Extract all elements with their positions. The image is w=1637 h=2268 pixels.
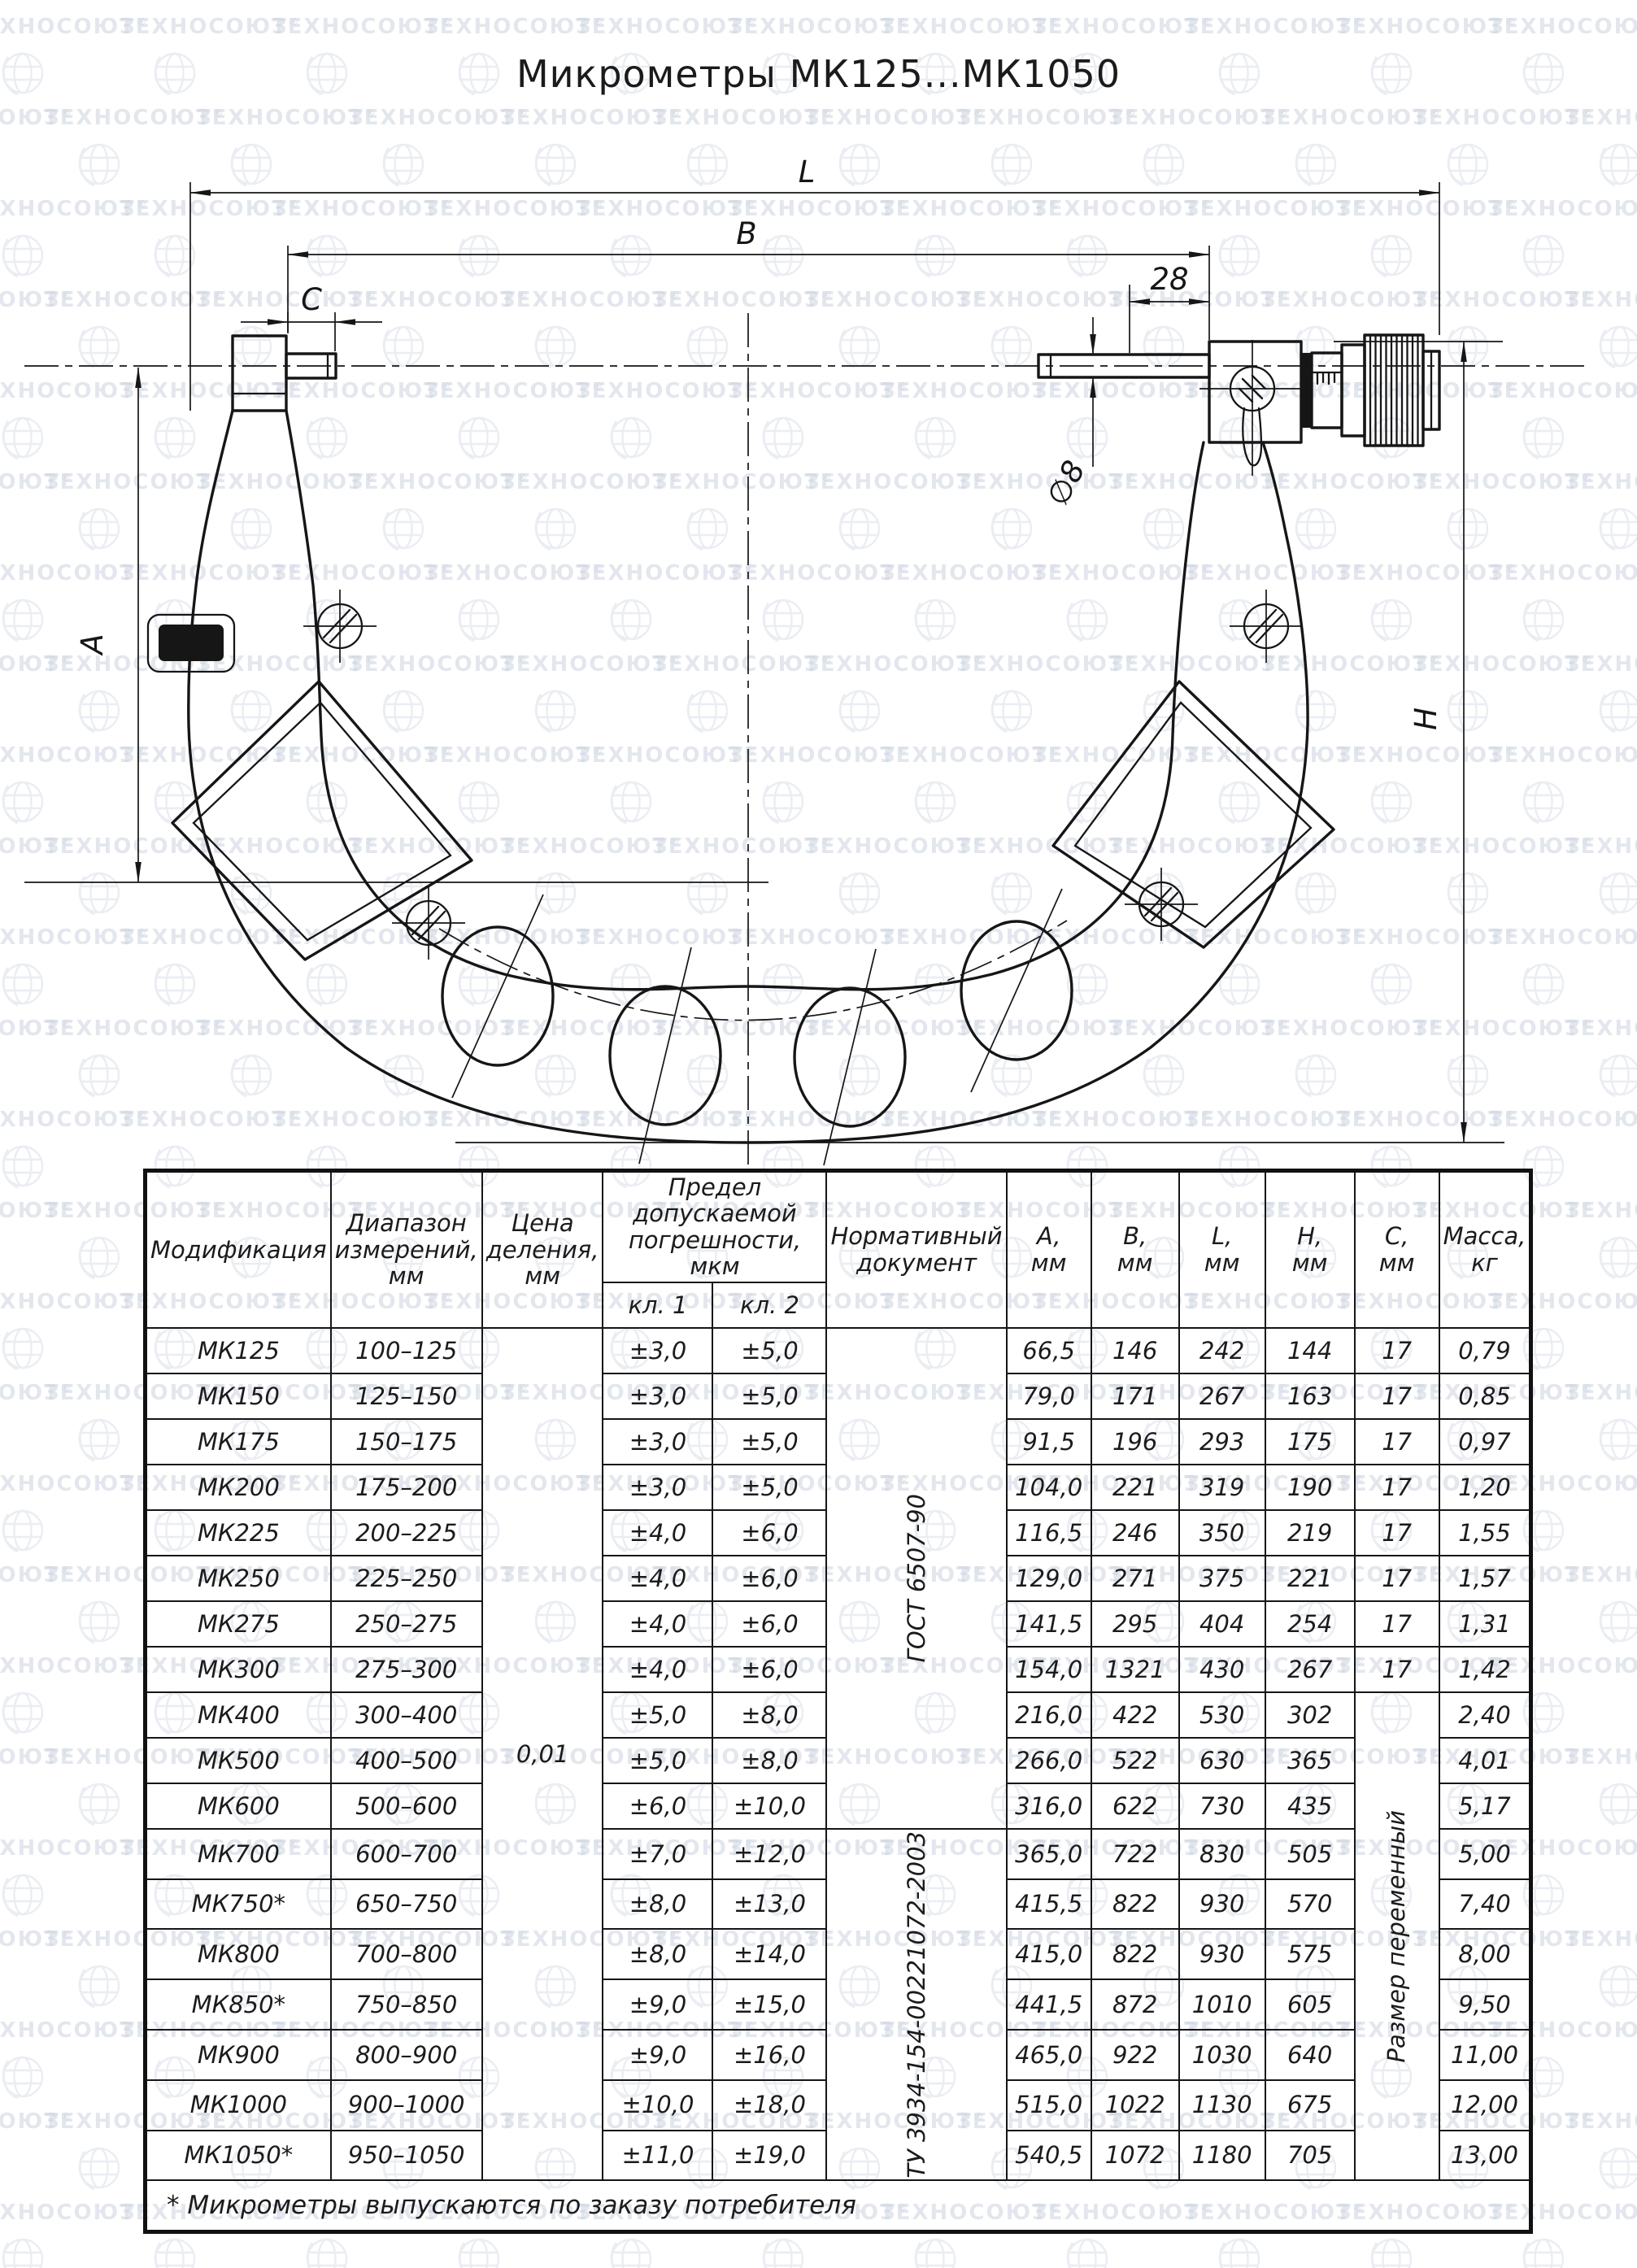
td-b: 822 bbox=[1091, 1929, 1179, 1979]
td-h: 505 bbox=[1265, 1829, 1355, 1879]
td-b: 221 bbox=[1091, 1465, 1179, 1510]
watermark-globe-icon bbox=[1594, 1778, 1637, 1830]
label-H: H bbox=[1408, 707, 1443, 730]
td-class1: ±11,0 bbox=[603, 2131, 712, 2181]
td-c: 17 bbox=[1355, 1465, 1439, 1510]
watermark-text: ТЕХНОСОЮЗ® bbox=[1565, 1745, 1637, 1770]
td-model: МК250 bbox=[146, 1556, 331, 1601]
td-b: 246 bbox=[1091, 1510, 1179, 1556]
td-l: 293 bbox=[1179, 1419, 1265, 1465]
th-dim-1: B,мм bbox=[1091, 1171, 1179, 1328]
watermark-text: ТЕХНОСОЮЗ® bbox=[0, 1199, 73, 1223]
td-l: 930 bbox=[1179, 1929, 1265, 1979]
watermark-text: ТЕХНОСОЮЗ® bbox=[0, 1563, 73, 1587]
td-model: МК175 bbox=[146, 1419, 331, 1465]
td-class2: ±15,0 bbox=[712, 1979, 826, 2030]
th-dim-4: C,мм bbox=[1355, 1171, 1439, 1328]
th-dim-5: Масса,кг bbox=[1439, 1171, 1531, 1328]
footnote-row: * Микрометры выпускаются по заказу потре… bbox=[146, 2180, 1531, 2232]
th-dim-symbol: Масса, bbox=[1443, 1223, 1526, 1249]
datasheet-page: ТЕХНОСОЮЗ®ТЕХНОСОЮЗ®ТЕХНОСОЮЗ®ТЕХНОСОЮЗ®… bbox=[0, 0, 1637, 2268]
td-model: МК700 bbox=[146, 1829, 331, 1879]
watermark-text: ТЕХНОСОЮЗ® bbox=[0, 1290, 149, 1314]
doc-tu-text: ТУ 3934-154-00221072-2003 bbox=[903, 1831, 930, 2179]
td-b: 295 bbox=[1091, 1601, 1179, 1647]
td-h: 144 bbox=[1265, 1328, 1355, 1373]
anvil-assembly bbox=[233, 336, 336, 411]
td-class1: ±8,0 bbox=[603, 1929, 712, 1979]
watermark-globe-icon bbox=[73, 1231, 125, 1283]
td-class2: ±18,0 bbox=[712, 2080, 826, 2131]
td-a: 365,0 bbox=[1007, 1829, 1091, 1879]
td-a: 104,0 bbox=[1007, 1465, 1091, 1510]
watermark-globe-icon bbox=[0, 2233, 49, 2268]
td-a: 141,5 bbox=[1007, 1601, 1091, 1647]
watermark-text: ТЕХНОСОЮЗ® bbox=[0, 2201, 149, 2225]
td-c: 17 bbox=[1355, 1419, 1439, 1465]
td-mass: 1,42 bbox=[1439, 1647, 1531, 1692]
td-class2: ±5,0 bbox=[712, 1419, 826, 1465]
watermark-globe-icon bbox=[605, 2233, 657, 2268]
th-dim-unit: мм bbox=[1359, 1250, 1435, 1276]
td-class2: ±6,0 bbox=[712, 1647, 826, 1692]
td-l: 350 bbox=[1179, 1510, 1265, 1556]
watermark-text: ТЕХНОСОЮЗ® bbox=[0, 1654, 149, 1678]
td-mass: 13,00 bbox=[1439, 2131, 1531, 2181]
th-dim-symbol: A, bbox=[1011, 1223, 1087, 1249]
td-l: 930 bbox=[1179, 1879, 1265, 1930]
td-a: 266,0 bbox=[1007, 1738, 1091, 1783]
th-dim-3: H,мм bbox=[1265, 1171, 1355, 1328]
td-model: МК150 bbox=[146, 1373, 331, 1419]
td-l: 830 bbox=[1179, 1829, 1265, 1879]
td-l: 267 bbox=[1179, 1373, 1265, 1419]
th-dim-2: L,мм bbox=[1179, 1171, 1265, 1328]
watermark-text: ТЕХНОСОЮЗ® bbox=[0, 1745, 73, 1770]
c-variable-text: Размер переменный bbox=[1383, 1810, 1409, 2062]
th-document: Нормативный документ bbox=[826, 1171, 1006, 1328]
label-28: 28 bbox=[1150, 262, 1188, 297]
watermark-globe-icon bbox=[1213, 2233, 1265, 2268]
td-model: МК1000 bbox=[146, 2080, 331, 2131]
td-b: 422 bbox=[1091, 1692, 1179, 1738]
th-dim-unit: мм bbox=[1269, 1250, 1351, 1276]
td-l: 1030 bbox=[1179, 2030, 1265, 2080]
td-h: 254 bbox=[1265, 1601, 1355, 1647]
td-range: 650–750 bbox=[331, 1879, 482, 1930]
label-C: C bbox=[301, 282, 322, 317]
td-a: 415,0 bbox=[1007, 1929, 1091, 1979]
watermark-globe-icon bbox=[73, 1595, 125, 1648]
td-h: 435 bbox=[1265, 1783, 1355, 1829]
td-range: 900–1000 bbox=[331, 2080, 482, 2131]
td-class1: ±5,0 bbox=[603, 1692, 712, 1738]
watermark-text: ТЕХНОСОЮЗ® bbox=[0, 2109, 73, 2134]
td-model: МК200 bbox=[146, 1465, 331, 1510]
td-c: 17 bbox=[1355, 1373, 1439, 1419]
td-model: МК1050* bbox=[146, 2131, 331, 2181]
thimble bbox=[1342, 345, 1365, 436]
td-h: 267 bbox=[1265, 1647, 1355, 1692]
td-class2: ±6,0 bbox=[712, 1510, 826, 1556]
td-b: 171 bbox=[1091, 1373, 1179, 1419]
sleeve bbox=[1312, 353, 1342, 428]
td-class2: ±8,0 bbox=[712, 1738, 826, 1783]
watermark-text: ТЕХНОСОЮЗ® bbox=[1565, 1563, 1637, 1587]
td-model: МК850* bbox=[146, 1979, 331, 2030]
spec-table: МодификацияДиапазон измерений, ммЦена де… bbox=[143, 1169, 1533, 2234]
td-range: 275–300 bbox=[331, 1647, 482, 1692]
td-b: 1321 bbox=[1091, 1647, 1179, 1692]
footnote: * Микрометры выпускаются по заказу потре… bbox=[146, 2180, 1531, 2232]
td-class1: ±3,0 bbox=[603, 1419, 712, 1465]
td-a: 116,5 bbox=[1007, 1510, 1091, 1556]
th-dim-0: A,мм bbox=[1007, 1171, 1091, 1328]
th-range: Диапазон измерений, мм bbox=[331, 1171, 482, 1328]
watermark-text: ТЕХНОСОЮЗ® bbox=[0, 2018, 149, 2043]
td-model: МК900 bbox=[146, 2030, 331, 2080]
td-h: 570 bbox=[1265, 1879, 1355, 1930]
td-c-variable: Размер переменный bbox=[1355, 1692, 1439, 2181]
td-class1: ±9,0 bbox=[603, 2030, 712, 2080]
watermark-text: ТЕХНОСОЮЗ® bbox=[0, 1927, 73, 1952]
td-class2: ±6,0 bbox=[712, 1556, 826, 1601]
td-l: 404 bbox=[1179, 1601, 1265, 1647]
td-a: 515,0 bbox=[1007, 2080, 1091, 2131]
td-range: 100–125 bbox=[331, 1328, 482, 1373]
th-dim-symbol: C, bbox=[1359, 1223, 1435, 1249]
watermark-globe-icon bbox=[1594, 2142, 1637, 2194]
td-class2: ±12,0 bbox=[712, 1829, 826, 1879]
td-mass: 5,00 bbox=[1439, 1829, 1531, 1879]
micrometer-drawing: L B C 28 ∅8 A H bbox=[0, 0, 1637, 1169]
knurled-grip bbox=[1365, 335, 1423, 446]
td-mass: 9,50 bbox=[1439, 1979, 1531, 2030]
watermark-globe-icon bbox=[0, 2051, 49, 2103]
td-mass: 1,57 bbox=[1439, 1556, 1531, 1601]
td-class1: ±3,0 bbox=[603, 1328, 712, 1373]
td-l: 1180 bbox=[1179, 2131, 1265, 2181]
header-row-1: МодификацияДиапазон измерений, ммЦена де… bbox=[146, 1171, 1531, 1282]
td-b: 1022 bbox=[1091, 2080, 1179, 2131]
td-class1: ±3,0 bbox=[603, 1465, 712, 1510]
td-h: 175 bbox=[1265, 1419, 1355, 1465]
td-l: 1130 bbox=[1179, 2080, 1265, 2131]
td-class1: ±8,0 bbox=[603, 1879, 712, 1930]
td-doc-tu: ТУ 3934-154-00221072-2003 bbox=[826, 1829, 1006, 2181]
td-range: 300–400 bbox=[331, 1692, 482, 1738]
td-class2: ±5,0 bbox=[712, 1465, 826, 1510]
watermark-globe-icon bbox=[1594, 1231, 1637, 1283]
watermark-globe-icon bbox=[149, 2233, 201, 2268]
adjustment-screws bbox=[303, 590, 1303, 960]
watermark-globe-icon bbox=[1594, 1413, 1637, 1465]
watermark-globe-icon bbox=[1517, 2233, 1570, 2268]
td-mass: 12,00 bbox=[1439, 2080, 1531, 2131]
td-a: 129,0 bbox=[1007, 1556, 1091, 1601]
watermark-globe-icon bbox=[0, 1504, 49, 1556]
td-a: 316,0 bbox=[1007, 1783, 1091, 1829]
td-class1: ±4,0 bbox=[603, 1647, 712, 1692]
td-range: 750–850 bbox=[331, 1979, 482, 2030]
watermark-globe-icon bbox=[0, 1322, 49, 1374]
td-mass: 8,00 bbox=[1439, 1929, 1531, 1979]
td-mass: 11,00 bbox=[1439, 2030, 1531, 2080]
td-class2: ±6,0 bbox=[712, 1601, 826, 1647]
td-class2: ±16,0 bbox=[712, 2030, 826, 2080]
watermark-globe-icon bbox=[757, 2233, 809, 2268]
th-dim-unit: мм bbox=[1095, 1250, 1175, 1276]
td-b: 872 bbox=[1091, 1979, 1179, 2030]
label-L: L bbox=[799, 155, 816, 189]
watermark-globe-icon bbox=[73, 1413, 125, 1465]
td-class2: ±10,0 bbox=[712, 1783, 826, 1829]
td-class2: ±5,0 bbox=[712, 1328, 826, 1373]
dimension-lines bbox=[24, 182, 1504, 1143]
td-class2: ±8,0 bbox=[712, 1692, 826, 1738]
td-model: МК125 bbox=[146, 1328, 331, 1373]
td-c: 17 bbox=[1355, 1601, 1439, 1647]
td-range: 150–175 bbox=[331, 1419, 482, 1465]
td-h: 575 bbox=[1265, 1929, 1355, 1979]
td-class1: ±9,0 bbox=[603, 1979, 712, 2030]
td-range: 250–275 bbox=[331, 1601, 482, 1647]
td-mass: 4,01 bbox=[1439, 1738, 1531, 1783]
td-range: 400–500 bbox=[331, 1738, 482, 1783]
td-l: 730 bbox=[1179, 1783, 1265, 1829]
td-class1: ±10,0 bbox=[603, 2080, 712, 2131]
td-class1: ±4,0 bbox=[603, 1556, 712, 1601]
sleeve-index-band bbox=[1301, 353, 1312, 428]
td-mass: 1,55 bbox=[1439, 1510, 1531, 1556]
watermark-globe-icon bbox=[453, 2233, 505, 2268]
td-b: 1072 bbox=[1091, 2131, 1179, 2181]
td-c: 17 bbox=[1355, 1328, 1439, 1373]
th-model: Модификация bbox=[146, 1171, 331, 1328]
td-model: МК275 bbox=[146, 1601, 331, 1647]
td-model: МК225 bbox=[146, 1510, 331, 1556]
watermark-text: ТЕХНОСОЮЗ® bbox=[1565, 1199, 1637, 1223]
td-a: 66,5 bbox=[1007, 1328, 1091, 1373]
td-mass: 0,85 bbox=[1439, 1373, 1531, 1419]
td-mass: 0,79 bbox=[1439, 1328, 1531, 1373]
td-division: 0,01 bbox=[482, 1328, 603, 2181]
td-class1: ±7,0 bbox=[603, 1829, 712, 1879]
td-l: 242 bbox=[1179, 1328, 1265, 1373]
td-range: 700–800 bbox=[331, 1929, 482, 1979]
td-h: 605 bbox=[1265, 1979, 1355, 2030]
table-row: МК700600–700±7,0±12,0ТУ 3934-154-0022107… bbox=[146, 1829, 1531, 1879]
th-dim-symbol: H, bbox=[1269, 1223, 1351, 1249]
th-class2: кл. 2 bbox=[712, 1282, 826, 1328]
watermark-globe-icon bbox=[0, 1687, 49, 1739]
td-h: 190 bbox=[1265, 1465, 1355, 1510]
label-B: B bbox=[736, 216, 756, 251]
td-model: МК600 bbox=[146, 1783, 331, 1829]
watermark-text: ТЕХНОСОЮЗ® bbox=[0, 1472, 149, 1496]
watermark-globe-icon bbox=[1365, 2233, 1417, 2268]
td-a: 79,0 bbox=[1007, 1373, 1091, 1419]
td-class2: ±14,0 bbox=[712, 1929, 826, 1979]
td-l: 530 bbox=[1179, 1692, 1265, 1738]
td-a: 441,5 bbox=[1007, 1979, 1091, 2030]
td-class1: ±3,0 bbox=[603, 1373, 712, 1419]
watermark-globe-icon bbox=[301, 2233, 353, 2268]
td-mass: 7,40 bbox=[1439, 1879, 1531, 1930]
watermark-globe-icon bbox=[1594, 1960, 1637, 2012]
td-model: МК500 bbox=[146, 1738, 331, 1783]
td-c: 17 bbox=[1355, 1647, 1439, 1692]
doc-gost-text: ГОСТ 6507-90 bbox=[903, 1494, 930, 1662]
td-b: 822 bbox=[1091, 1879, 1179, 1930]
td-h: 219 bbox=[1265, 1510, 1355, 1556]
td-h: 640 bbox=[1265, 2030, 1355, 2080]
td-doc-gost: ГОСТ 6507-90 bbox=[826, 1328, 1006, 1829]
td-model: МК750* bbox=[146, 1879, 331, 1930]
td-class2: ±19,0 bbox=[712, 2131, 826, 2181]
td-b: 196 bbox=[1091, 1419, 1179, 1465]
td-range: 175–200 bbox=[331, 1465, 482, 1510]
spindle-head-assembly bbox=[1038, 335, 1439, 476]
watermark-text: ТЕХНОСОЮЗ® bbox=[1565, 1381, 1637, 1405]
watermark-globe-icon bbox=[73, 1778, 125, 1830]
spec-table-wrap: МодификацияДиапазон измерений, ммЦена де… bbox=[143, 1169, 1533, 2234]
td-l: 375 bbox=[1179, 1556, 1265, 1601]
td-class2: ±5,0 bbox=[712, 1373, 826, 1419]
td-mass: 0,97 bbox=[1439, 1419, 1531, 1465]
th-class1: кл. 1 bbox=[603, 1282, 712, 1328]
td-b: 622 bbox=[1091, 1783, 1179, 1829]
watermark-text: ТЕХНОСОЮЗ® bbox=[0, 1836, 149, 1861]
td-class2: ±13,0 bbox=[712, 1879, 826, 1930]
th-dim-unit: мм bbox=[1183, 1250, 1261, 1276]
th-tolerance: Предел допускаемой погрешности, мкм bbox=[603, 1171, 826, 1282]
watermark-text: ТЕХНОСОЮЗ® bbox=[1565, 1927, 1637, 1952]
th-dim-unit: мм bbox=[1011, 1250, 1087, 1276]
td-mass: 2,40 bbox=[1439, 1692, 1531, 1738]
td-range: 500–600 bbox=[331, 1783, 482, 1829]
td-a: 415,5 bbox=[1007, 1879, 1091, 1930]
label-A: A bbox=[75, 633, 110, 655]
td-class1: ±4,0 bbox=[603, 1510, 712, 1556]
td-class1: ±6,0 bbox=[603, 1783, 712, 1829]
td-h: 163 bbox=[1265, 1373, 1355, 1419]
td-class1: ±4,0 bbox=[603, 1601, 712, 1647]
td-model: МК300 bbox=[146, 1647, 331, 1692]
td-a: 540,5 bbox=[1007, 2131, 1091, 2181]
td-range: 200–225 bbox=[331, 1510, 482, 1556]
td-l: 630 bbox=[1179, 1738, 1265, 1783]
td-model: МК400 bbox=[146, 1692, 331, 1738]
td-mass: 1,20 bbox=[1439, 1465, 1531, 1510]
td-model: МК800 bbox=[146, 1929, 331, 1979]
watermark-globe-icon bbox=[909, 2233, 961, 2268]
td-mass: 1,31 bbox=[1439, 1601, 1531, 1647]
td-a: 465,0 bbox=[1007, 2030, 1091, 2080]
watermark-globe-icon bbox=[73, 1960, 125, 2012]
td-h: 365 bbox=[1265, 1738, 1355, 1783]
th-dim-symbol: L, bbox=[1183, 1223, 1261, 1249]
td-b: 271 bbox=[1091, 1556, 1179, 1601]
td-l: 430 bbox=[1179, 1647, 1265, 1692]
td-class1: ±5,0 bbox=[603, 1738, 712, 1783]
td-a: 91,5 bbox=[1007, 1419, 1091, 1465]
label-dia8: ∅8 bbox=[1040, 455, 1092, 511]
td-c: 17 bbox=[1355, 1556, 1439, 1601]
td-range: 800–900 bbox=[331, 2030, 482, 2080]
td-l: 1010 bbox=[1179, 1979, 1265, 2030]
td-h: 705 bbox=[1265, 2131, 1355, 2181]
watermark-text: ТЕХНОСОЮЗ® bbox=[0, 1381, 73, 1405]
td-b: 722 bbox=[1091, 1829, 1179, 1879]
td-h: 675 bbox=[1265, 2080, 1355, 2131]
table-row: МК125100–1250,01±3,0±5,0ГОСТ 6507-9066,5… bbox=[146, 1328, 1531, 1373]
watermark-text: ТЕХНОСОЮЗ® bbox=[1565, 2109, 1637, 2134]
td-b: 146 bbox=[1091, 1328, 1179, 1373]
td-a: 154,0 bbox=[1007, 1647, 1091, 1692]
td-range: 600–700 bbox=[331, 1829, 482, 1879]
td-mass: 5,17 bbox=[1439, 1783, 1531, 1829]
td-a: 216,0 bbox=[1007, 1692, 1091, 1738]
td-range: 225–250 bbox=[331, 1556, 482, 1601]
td-l: 319 bbox=[1179, 1465, 1265, 1510]
td-h: 302 bbox=[1265, 1692, 1355, 1738]
th-division: Цена деления, мм bbox=[482, 1171, 603, 1328]
td-range: 950–1050 bbox=[331, 2131, 482, 2181]
td-c: 17 bbox=[1355, 1510, 1439, 1556]
td-b: 522 bbox=[1091, 1738, 1179, 1783]
th-dim-symbol: B, bbox=[1095, 1223, 1175, 1249]
td-b: 922 bbox=[1091, 2030, 1179, 2080]
watermark-globe-icon bbox=[73, 2142, 125, 2194]
watermark-globe-icon bbox=[0, 1869, 49, 1921]
watermark-globe-icon bbox=[1594, 1595, 1637, 1648]
th-dim-unit: кг bbox=[1443, 1250, 1526, 1276]
td-range: 125–150 bbox=[331, 1373, 482, 1419]
td-h: 221 bbox=[1265, 1556, 1355, 1601]
page-title: Микрометры МК125...МК1050 bbox=[0, 54, 1637, 95]
watermark-globe-icon bbox=[1061, 2233, 1113, 2268]
